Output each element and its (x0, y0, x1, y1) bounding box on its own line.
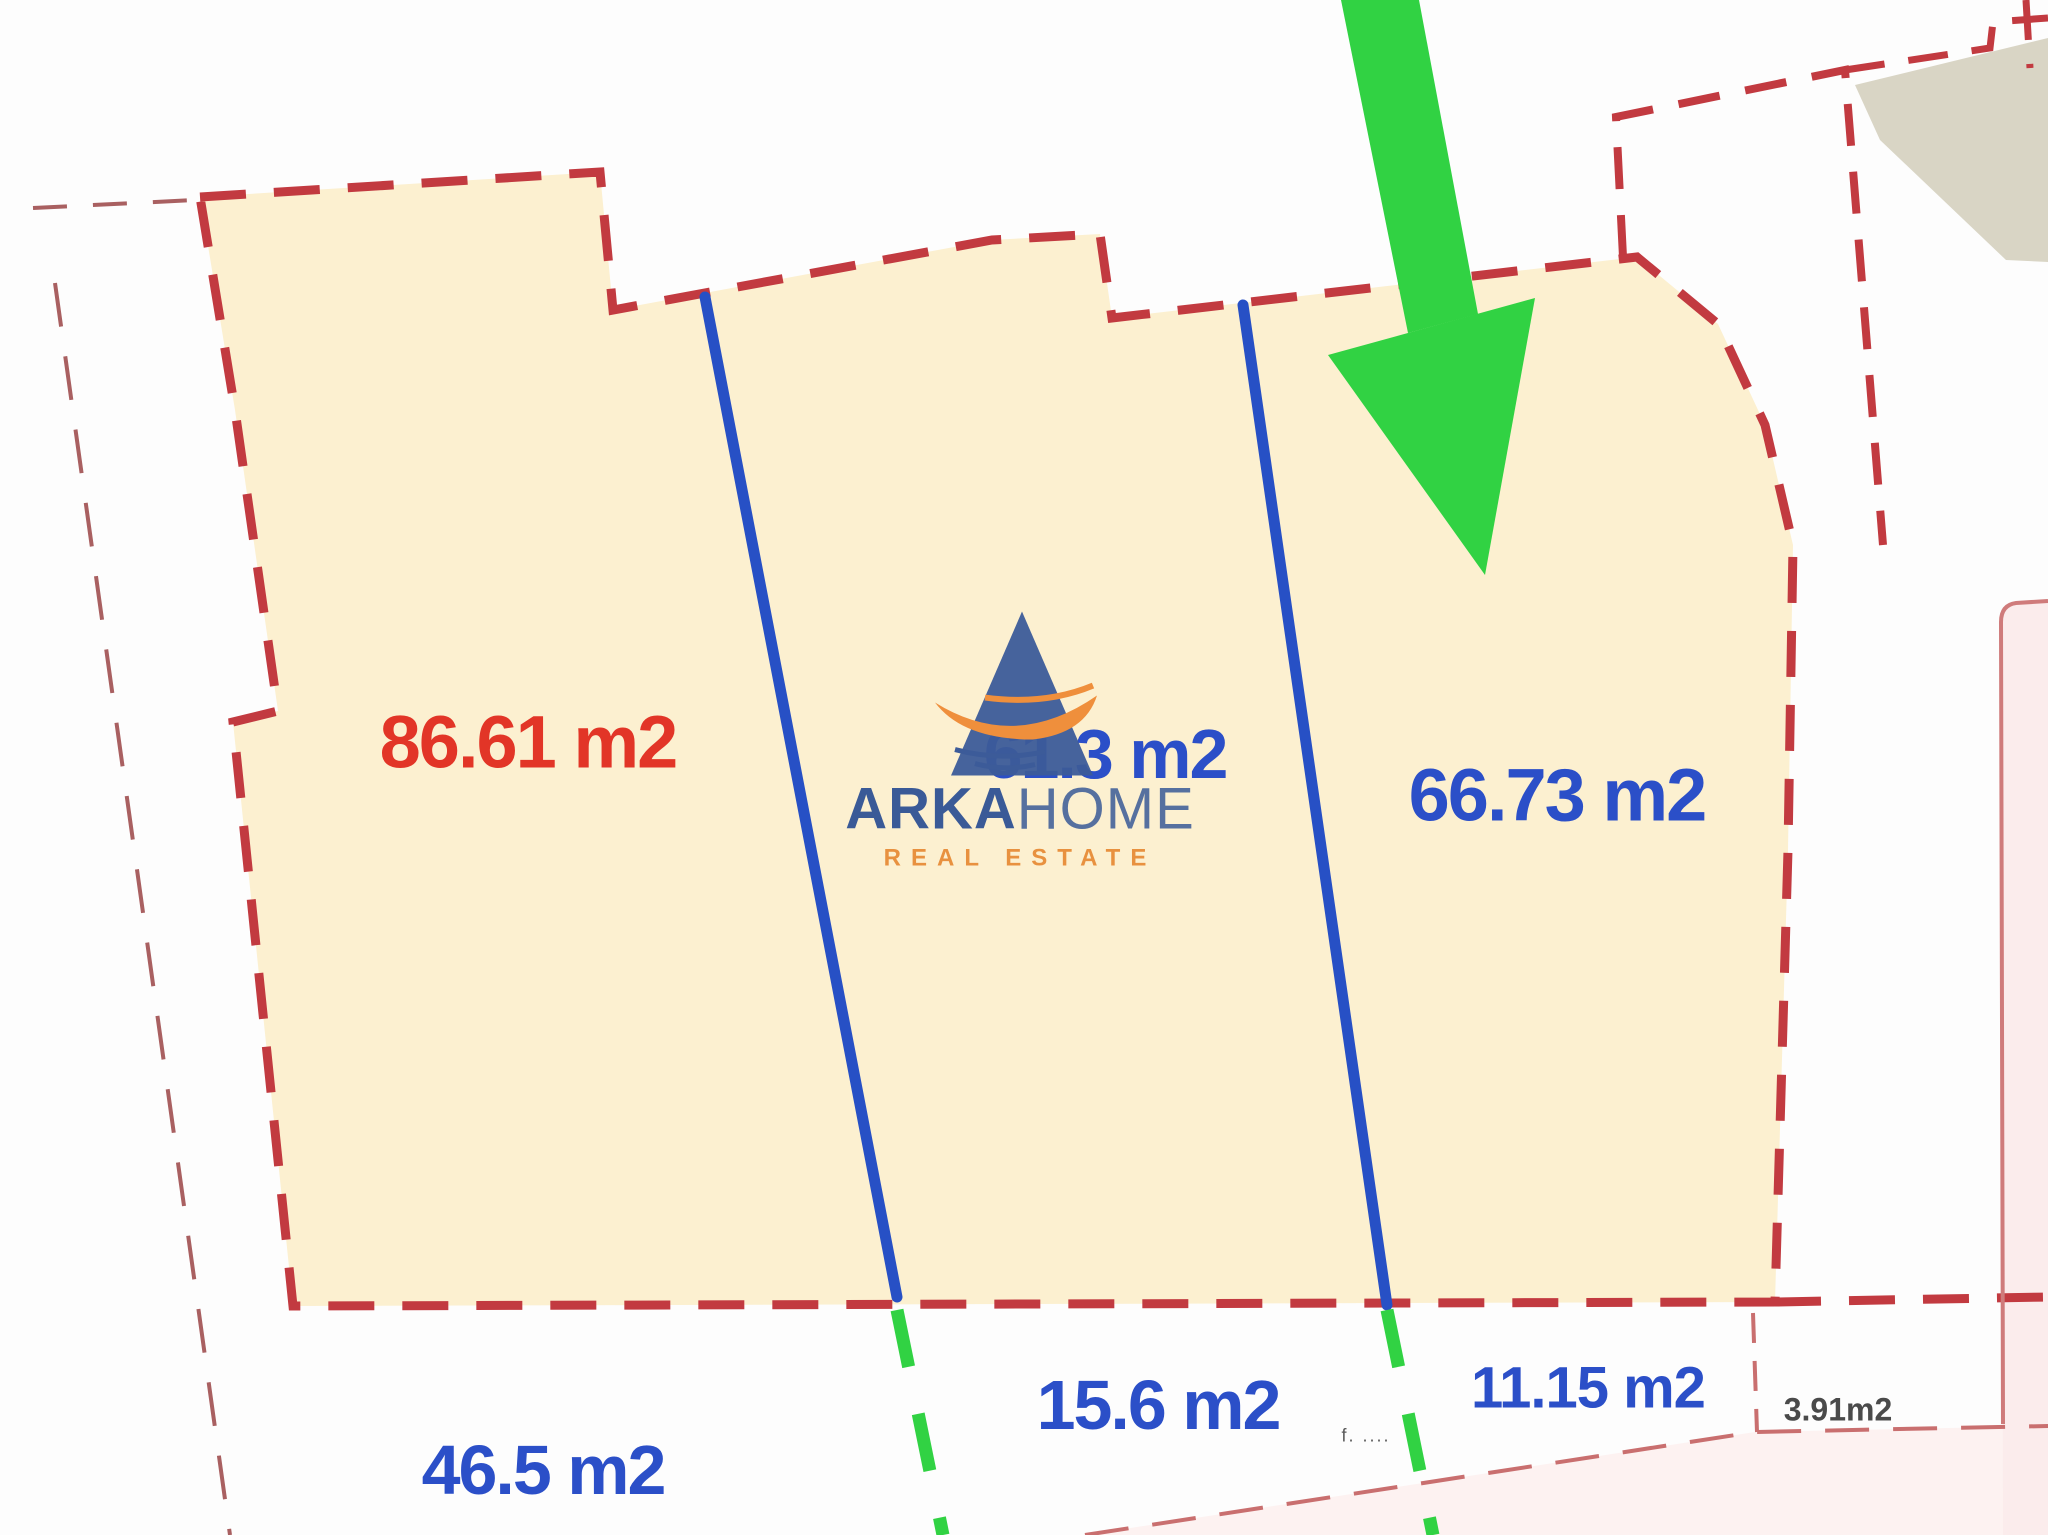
area-label-3-91: 3.91m2 (1784, 1392, 1893, 1429)
brand-light: HOME (1017, 777, 1195, 842)
arkahome-logo-icon (925, 608, 1115, 780)
bottom-border-extension (1775, 1297, 2048, 1302)
tiny-annotation: f. .... (1341, 1426, 1390, 1447)
green-dashed-left (897, 1310, 943, 1535)
pink-area-right (2001, 601, 2048, 1535)
outer-boundary-top-left (33, 200, 195, 208)
gray-area-top-right (1855, 38, 2048, 262)
area-label-15-6: 15.6 m2 (1037, 1365, 1280, 1445)
arkahome-wordmark: ARKAHOME (720, 780, 1320, 841)
cadastral-plan-canvas: 86.61 m2 61.3 m2 66.73 m2 46.5 m2 15.6 m… (0, 0, 2048, 1535)
pink-vertical-391-box (1753, 1313, 1757, 1432)
brand-tagline: REAL ESTATE (720, 844, 1320, 872)
outer-boundary-left (55, 283, 230, 1535)
area-label-11-15: 11.15 m2 (1471, 1355, 1705, 1422)
brand-bold: ARKA (845, 777, 1017, 842)
area-label-46-5: 46.5 m2 (422, 1430, 665, 1510)
arkahome-watermark: ARKAHOME REAL ESTATE (720, 608, 1320, 873)
area-label-66-73: 66.73 m2 (1409, 753, 1706, 838)
area-label-86-61: 86.61 m2 (380, 700, 677, 785)
